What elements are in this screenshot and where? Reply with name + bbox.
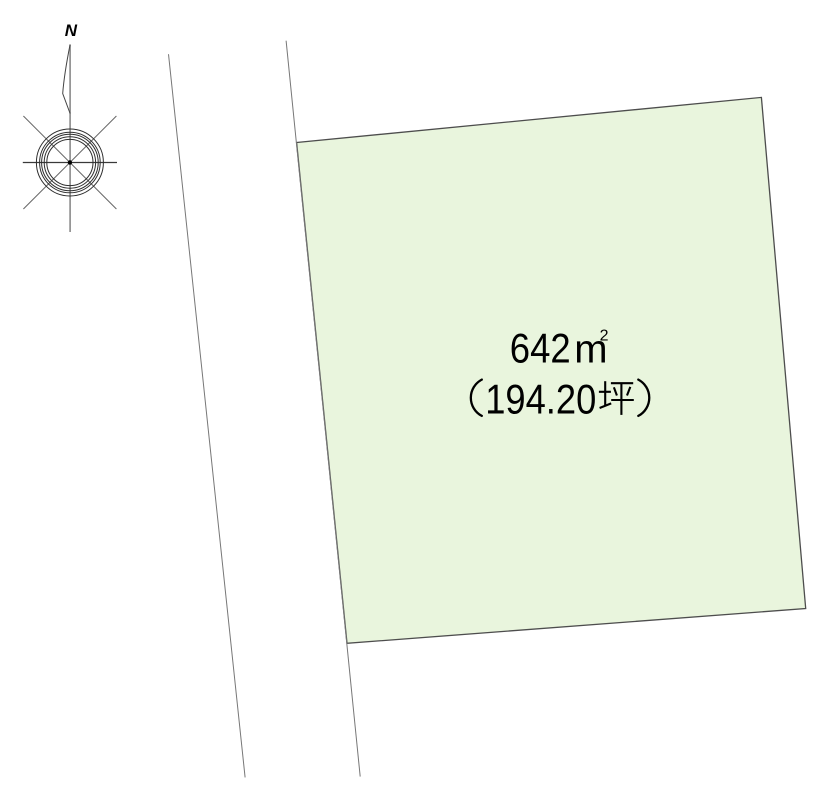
svg-text:194.20: 194.20: [485, 376, 596, 423]
svg-text:2: 2: [600, 327, 609, 344]
svg-text:642: 642: [510, 325, 571, 372]
svg-text:N: N: [65, 21, 78, 40]
